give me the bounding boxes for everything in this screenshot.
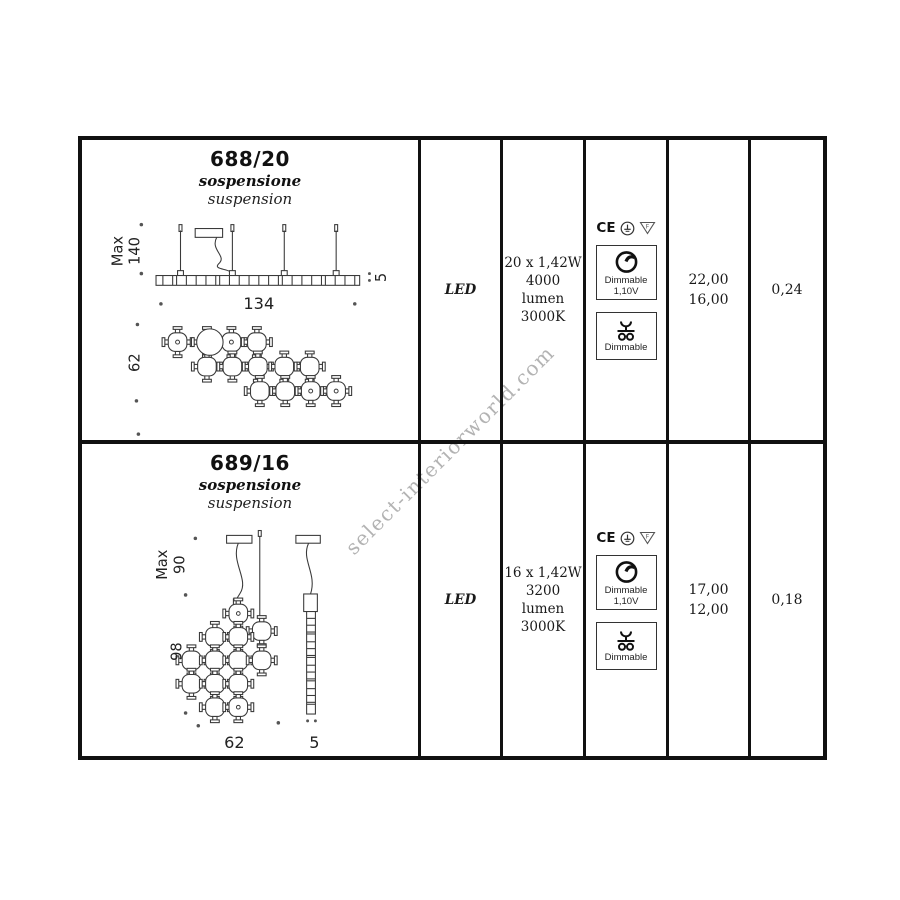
light-source-label: LED: [445, 282, 477, 298]
spec-kelvin: 3000K: [521, 618, 565, 636]
dimmable-110v-box: Dimmable 1,10V: [596, 555, 657, 610]
plan-view-drawing: [162, 327, 352, 407]
icons-cell-688-20: CE F Dimmable 1,10V: [586, 140, 669, 444]
side-view-drawing: [295, 535, 319, 714]
dimmable-110v-box: Dimmable 1,10V: [596, 245, 657, 300]
protection-class-icon: [620, 221, 635, 236]
dimmer-knob-icon: [613, 558, 640, 585]
prices-cell-689-16: 17,00 12,00: [669, 444, 751, 756]
certification-icons: CE F: [596, 221, 655, 236]
driver-circle: [196, 329, 222, 355]
volume-value: 0,18: [771, 592, 802, 608]
catalog-page: select-interiorworld.com 688/20 sospensi…: [0, 0, 900, 900]
type-english: suspension: [199, 496, 301, 511]
price-value: 12,00: [688, 600, 728, 620]
type-italian: sospensione: [199, 478, 301, 493]
dimmable-label: Dimmable: [605, 652, 648, 663]
drawing-cell-689-16: 689/16 sospensione suspension: [82, 444, 421, 756]
dimmable-voltage: 1,10V: [614, 596, 639, 607]
volume-value: 0,24: [771, 282, 802, 298]
icons-cell-689-16: CE F Dimmable 1,10V: [586, 444, 669, 756]
volume-cell-689-16: 0,18: [751, 444, 823, 756]
dim-max-height: 140: [126, 237, 143, 265]
dimmable-label: Dimmable: [605, 342, 648, 353]
push-dim-icon: [611, 319, 641, 342]
led-cell-689-16: LED: [421, 444, 503, 756]
dimmable-label: Dimmable: [605, 275, 648, 286]
technical-drawing-689-16: Max 90 98 62 5: [83, 511, 418, 756]
dim-max-label: Max: [154, 549, 171, 580]
volume-cell-688-20: 0,24: [751, 140, 823, 444]
prices-cell-688-20: 22,00 16,00: [669, 140, 751, 444]
price-value: 17,00: [688, 580, 728, 600]
dim-fixture-height: 98: [168, 642, 185, 661]
certification-icons: CE F: [596, 531, 655, 546]
protection-class-icon: [620, 531, 635, 546]
spec-lumen: 3200 lumen: [503, 582, 583, 618]
type-italian: sospensione: [199, 174, 301, 189]
dimmable-push-box: Dimmable: [596, 312, 657, 360]
drawing-cell-688-20: 688/20 sospensione suspension: [82, 140, 421, 444]
type-english: suspension: [199, 192, 301, 207]
f-mark-icon: F: [639, 221, 656, 235]
light-source-label: LED: [445, 592, 477, 608]
dimmable-voltage: 1,10V: [614, 286, 639, 297]
dimmable-label: Dimmable: [605, 585, 648, 596]
specs-cell-689-16: 16 x 1,42W 3200 lumen 3000K: [503, 444, 586, 756]
technical-drawing-688-20: Max 140 134 5 62: [83, 207, 418, 440]
price-value: 22,00: [688, 270, 728, 290]
dim-depth: 5: [309, 733, 319, 752]
ce-mark: CE: [596, 530, 615, 546]
dim-depth: 5: [373, 273, 390, 282]
led-cell-688-20: LED: [421, 140, 503, 444]
product-title-block: 689/16 sospensione suspension: [199, 444, 301, 511]
product-spec-table: 688/20 sospensione suspension: [78, 136, 827, 760]
spec-wattage: 20 x 1,42W: [504, 254, 581, 272]
model-number: 689/16: [199, 453, 301, 473]
front-view-drawing: [156, 225, 360, 286]
spec-lumen: 4000 lumen: [503, 272, 583, 308]
model-number: 688/20: [199, 149, 301, 169]
ce-mark: CE: [596, 220, 615, 236]
f-mark-letter: F: [645, 533, 649, 540]
dimmer-knob-icon: [613, 248, 640, 275]
dim-width: 62: [224, 733, 244, 752]
dim-fixture-height: 62: [126, 353, 143, 372]
dimmable-push-box: Dimmable: [596, 622, 657, 670]
module-cluster: [176, 598, 277, 723]
dim-max-height: 90: [171, 555, 188, 574]
price-value: 16,00: [688, 290, 728, 310]
product-title-block: 688/20 sospensione suspension: [199, 140, 301, 207]
spec-kelvin: 3000K: [521, 308, 565, 326]
dim-width: 134: [243, 294, 274, 313]
f-mark-icon: F: [639, 531, 656, 545]
push-dim-icon: [611, 629, 641, 652]
dim-max-label: Max: [109, 236, 126, 267]
spec-wattage: 16 x 1,42W: [504, 564, 581, 582]
f-mark-letter: F: [645, 223, 649, 230]
specs-cell-688-20: 20 x 1,42W 4000 lumen 3000K: [503, 140, 586, 444]
